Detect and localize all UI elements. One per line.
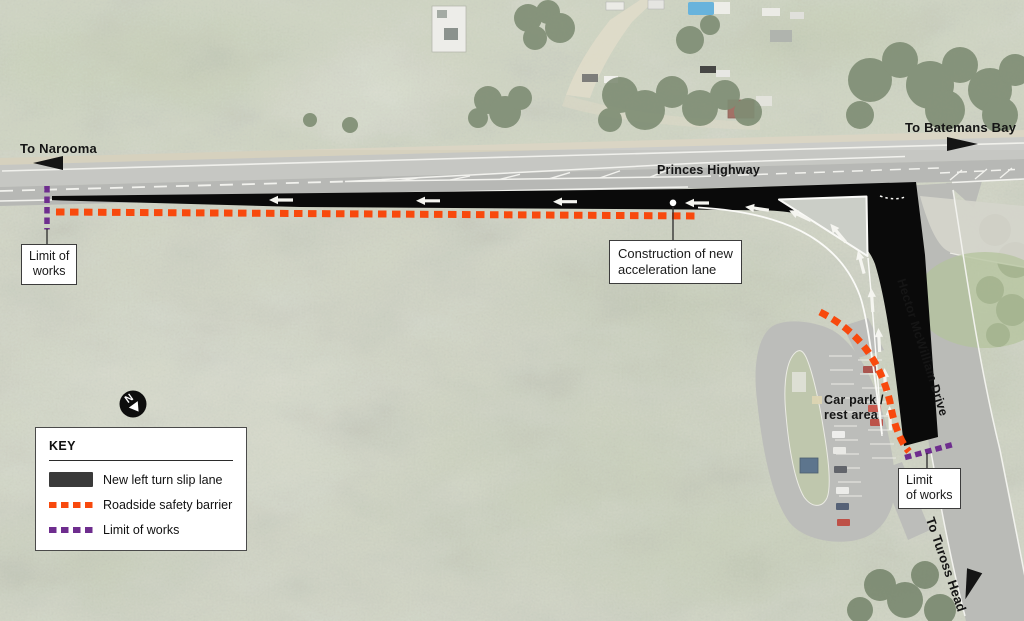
to-narooma-label: To Narooma [20,141,97,156]
princes-highway-label: Princes Highway [657,163,760,177]
limit-of-works-callout-west: Limit of works [21,244,77,285]
batemans-bay-direction-arrow-icon [947,137,978,151]
callout-line: Construction of new [618,246,733,262]
construction-callout: Construction of new acceleration lane [609,240,742,284]
key-item-label: New left turn slip lane [103,473,223,487]
car-park-label-line2: rest area [824,408,884,423]
safety-barrier-swatch [49,502,93,509]
north-arrow: N [120,391,147,418]
callout-line: Limit of [29,249,69,264]
key-item-safety-barrier: Roadside safety barrier [49,498,233,512]
limit-of-works-callout-south: Limit of works [898,468,961,509]
slip-lane-swatch [49,472,93,487]
key-item-label: Roadside safety barrier [103,498,232,512]
car-park-label: Car park / rest area [824,393,884,423]
callout-anchor-dot [670,200,677,207]
key-item-limit-of-works: Limit of works [49,523,233,537]
project-map: N To Narooma To Batemans Bay Princes Hig… [0,0,1024,621]
callout-line: acceleration lane [618,262,733,278]
aerial-wash-top [0,0,1024,150]
callout-line: of works [906,488,953,503]
callout-line: Limit [906,473,953,488]
callout-line: works [29,264,69,279]
key-title: KEY [49,439,233,453]
key-item-slip-lane: New left turn slip lane [49,472,233,487]
to-batemans-bay-label: To Batemans Bay [905,120,1016,135]
key-divider [49,460,233,461]
narooma-direction-arrow-icon [33,156,63,170]
key-panel: KEY New left turn slip lane Roadside saf… [35,427,247,551]
limit-of-works-swatch [49,527,93,534]
key-item-label: Limit of works [103,523,179,537]
car-park-label-line1: Car park / [824,393,884,408]
